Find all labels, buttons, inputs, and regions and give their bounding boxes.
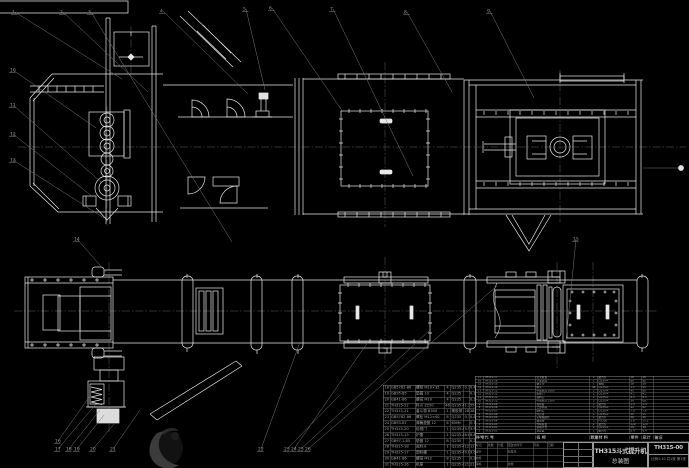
bom-cell: 序号 <box>476 435 485 439</box>
bom-row: 序号代 号名 称数量材 料单件总计备注 <box>476 434 689 443</box>
bom-cell <box>488 455 498 461</box>
bom-row: 31TH315-16机座1Q235-A2121 <box>384 462 476 468</box>
watermark-logo <box>150 428 183 468</box>
bom-cell: TH315-20 <box>391 427 416 432</box>
bom-cell: 18 <box>384 386 391 391</box>
bom-cell: GB97.1-85 <box>391 439 416 444</box>
callout-leader <box>69 410 100 449</box>
bom-cell: 28 <box>384 445 391 450</box>
bom-cell: 21 <box>384 403 391 408</box>
bom-cell: 弹簧垫圈 12 <box>416 421 445 426</box>
bom-cell: 30 <box>384 457 391 462</box>
bom-cell <box>548 462 564 468</box>
bom-cell: 22 <box>384 409 391 414</box>
elevation-view <box>0 1 684 251</box>
bom-cell: 名 称 <box>536 435 590 439</box>
callout-leader <box>13 160 104 218</box>
bom-cell: 代 号 <box>484 435 536 439</box>
bom-cell: 标记 <box>476 443 488 449</box>
bom-cell: 螺母 M12 <box>416 457 445 462</box>
bom-row: 审核批准 <box>476 462 564 468</box>
bom-cell: 料斗 Z250 <box>416 403 445 408</box>
bom-cell: 日期 <box>548 443 564 449</box>
bom-cell <box>498 455 508 461</box>
bom-cell: 橡胶带 <box>451 409 464 414</box>
bom-cell: TH315-21 <box>391 409 416 414</box>
bom-cell: 签名 <box>534 443 548 449</box>
callout-leader <box>246 9 265 90</box>
bom-cell: TH315-19 <box>391 433 416 438</box>
bom-table-right: 17TH315-17张紧装置1组合件161616TH315-16下部区段1Q23… <box>475 376 689 434</box>
bom-cell: GB5782-86 <box>391 386 416 391</box>
bom-cell <box>534 455 548 461</box>
bom-cell: GB5782-86 <box>391 415 416 420</box>
bom-cell: 数量 <box>590 435 598 439</box>
bom-cell: 65Mn <box>451 421 464 426</box>
drawing-number: TH315-00 <box>649 445 688 451</box>
bom-cell <box>498 462 508 468</box>
bom-table-left: 18GB5782-86螺栓 M10×354Q2350.10.419GB95-85… <box>383 385 476 468</box>
bom-cell: TH315-18 <box>391 445 416 450</box>
callout-leader <box>63 12 148 92</box>
bom-cell: 31 <box>384 462 391 467</box>
centerlines <box>14 26 686 432</box>
bom-cell: 27 <box>384 439 391 444</box>
bom-cell: 26 <box>384 433 391 438</box>
drawing-title: TH315斗式提升机 <box>594 446 647 455</box>
bom-cell: 垫圈 10 <box>416 391 445 396</box>
callout-leader <box>58 396 90 441</box>
callout-leader <box>13 105 101 182</box>
callout-leader <box>77 239 106 272</box>
bom-cell: 检视门 <box>416 427 445 432</box>
bom-cell: 24 <box>384 421 391 426</box>
bom-cell: 螺栓 M10×35 <box>416 386 445 391</box>
bom-cell: 机座 <box>416 462 445 467</box>
bom-cell: GB93-87 <box>391 421 416 426</box>
bom-cell: 19 <box>384 391 391 396</box>
bom-cell: Q235-A <box>451 451 464 456</box>
bom-cell: 分区 <box>498 443 508 449</box>
bom-cell <box>548 449 564 455</box>
callout-leader <box>93 424 114 449</box>
callout-leader <box>13 134 93 197</box>
bom-cell: GB41-86 <box>391 397 416 402</box>
bom-cell: 材 料 <box>598 435 630 439</box>
bom-cell: TH315-17 <box>391 451 416 456</box>
bom-cell: 批准 <box>508 462 534 468</box>
bom-cell: TH315-16 <box>391 462 416 467</box>
bom-cell <box>488 462 498 468</box>
bom-cell: 20 <box>384 397 391 402</box>
bom-cell: Q235-A <box>451 445 464 450</box>
callout-leader <box>294 342 368 449</box>
callout-leader <box>163 11 248 94</box>
drawing-subtitle: 总装图 <box>594 456 647 465</box>
bom-cell: 螺栓 M12×40 <box>416 415 445 420</box>
bom-cell: Q235-A <box>451 433 464 438</box>
bom-cell: 备注 <box>654 435 689 439</box>
bom-cell <box>548 455 564 461</box>
bom-cell: 螺母 M10 <box>416 397 445 402</box>
callout-leader <box>91 12 232 242</box>
callout-leader <box>13 70 96 128</box>
bom-cell: 处数 <box>488 443 498 449</box>
callout-leader <box>407 12 452 92</box>
title-cell: TH315斗式提升机 总装图 <box>593 442 648 468</box>
bom-cell <box>534 462 548 468</box>
bom-cell: 标准化 <box>508 449 534 455</box>
drawing-number-cell: TH315-00 比例1:10 共1张 第1张 <box>648 442 689 468</box>
bom-cell: 设计 <box>476 449 488 455</box>
callout-leader <box>287 395 340 449</box>
bom-cell: Q235 <box>451 439 464 444</box>
bom-cell: Q235 <box>451 397 464 402</box>
bom-cell: GB95-85 <box>391 391 416 396</box>
bom-cell: 单件 <box>630 435 642 439</box>
bom-cell: Q235 <box>451 386 464 391</box>
title-block-footer: 比例1:10 共1张 第1张 <box>649 454 688 461</box>
bom-cell <box>498 449 508 455</box>
bom-cell: 23 <box>384 415 391 420</box>
callout-leader <box>333 9 413 176</box>
callout-leader <box>261 342 300 449</box>
callout-leader <box>58 404 96 449</box>
bom-cell: TH315-22 <box>391 403 416 408</box>
bom-cell <box>508 455 534 461</box>
bom-cell: 29 <box>384 451 391 456</box>
bom-cell: 卸料槽 <box>416 451 445 456</box>
bom-cell: 护罩 <box>416 433 445 438</box>
bom-cell: Q235 <box>451 391 464 396</box>
bom-cell: 垫圈 12 <box>416 439 445 444</box>
bom-cell: 畚斗带 B300 <box>416 409 445 414</box>
signature-grid: 标记处数分区更改文件号签名日期设计标准化校核审核批准 <box>475 442 564 468</box>
bom-cell: 25 <box>384 427 391 432</box>
cad-drawing-sheet: 1234567891011121314151617181920212223242… <box>0 0 689 468</box>
bom-cell: Q235-A <box>451 403 464 408</box>
bom-cell: Q235 <box>451 457 464 462</box>
bom-cell: Q235-A <box>451 462 464 467</box>
bom-cell: 进料斗 <box>416 445 445 450</box>
bom-cell: 审核 <box>476 462 488 468</box>
bom-cell <box>534 449 548 455</box>
revision-grid <box>563 442 593 468</box>
callout-leader <box>272 8 343 112</box>
bom-cell: 校核 <box>476 455 488 461</box>
bom-cell <box>488 449 498 455</box>
bom-cell: 总计 <box>642 435 654 439</box>
bom-cell: Q235-A <box>451 427 464 432</box>
bom-cell: GB41-86 <box>391 457 416 462</box>
callout-leader <box>77 415 104 449</box>
bom-cell: 更改文件号 <box>508 443 534 449</box>
bom-cell: Q235 <box>451 415 464 420</box>
